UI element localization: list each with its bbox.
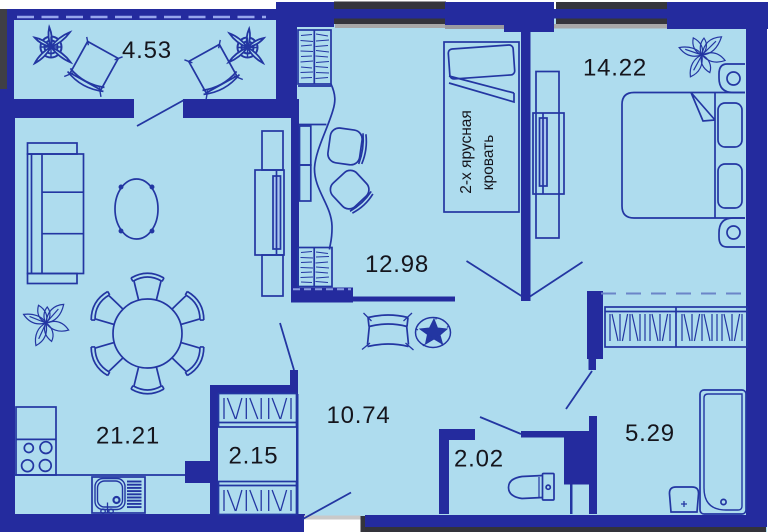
svg-text:2.15: 2.15 [229, 443, 279, 470]
svg-text:2.02: 2.02 [454, 446, 504, 473]
svg-text:14.22: 14.22 [583, 55, 647, 82]
svg-text:кровать: кровать [480, 135, 497, 191]
svg-text:5.29: 5.29 [625, 420, 675, 447]
svg-text:2-х ярусная: 2-х ярусная [458, 110, 475, 194]
svg-text:10.74: 10.74 [326, 402, 390, 429]
svg-text:12.98: 12.98 [365, 251, 429, 278]
svg-text:21.21: 21.21 [96, 423, 160, 450]
svg-text:4.53: 4.53 [122, 37, 172, 64]
